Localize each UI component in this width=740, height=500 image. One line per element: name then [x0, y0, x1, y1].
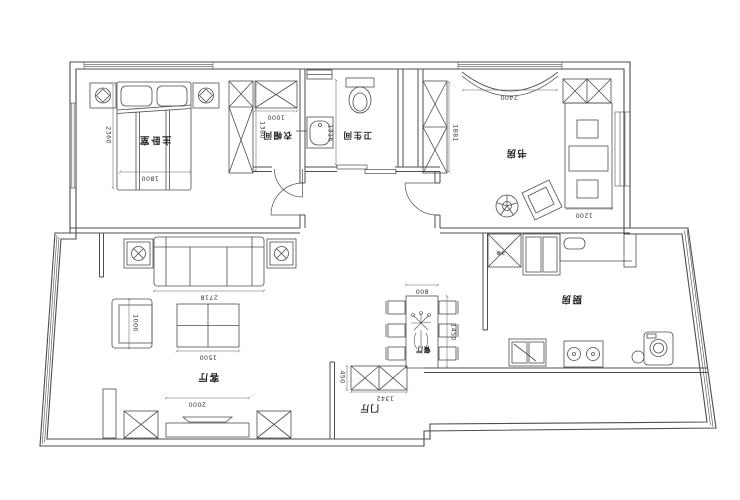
- pillow: [121, 86, 152, 106]
- chair: [439, 301, 456, 314]
- dimension-lines: [113, 80, 612, 398]
- dim-shoe-cabinet: 1342: [376, 395, 394, 402]
- entry-furniture: [351, 366, 407, 390]
- dim-sofa: 2718: [200, 294, 218, 301]
- exterior-walls: [40, 62, 716, 446]
- pillow: [157, 86, 187, 106]
- room-label-bathroom: 卫生间: [342, 130, 372, 139]
- dim-bed-width: 1800: [141, 175, 159, 182]
- dim-cloak-depth: 1380: [259, 121, 266, 139]
- doors: [271, 165, 437, 215]
- tv-cabinet: [166, 423, 249, 437]
- room-label-living-room: 客厅: [197, 371, 219, 381]
- bedroom-door: [271, 183, 303, 215]
- desk: [565, 103, 612, 208]
- cabinet: [523, 234, 560, 275]
- washing-machine: [644, 332, 673, 365]
- dim-cloak-wardrobe: 1000: [267, 114, 285, 121]
- dim-study-window: 2400: [500, 94, 518, 101]
- dining-table: [406, 296, 438, 368]
- flue: [624, 234, 636, 267]
- room-label-cloakroom: 衣帽间: [262, 130, 292, 139]
- room-label-kitchen: 厨房: [560, 293, 582, 303]
- dim-coffee-table: 1500: [199, 354, 217, 361]
- toilet: [346, 78, 374, 87]
- stove: [564, 341, 603, 367]
- nightstand: [193, 83, 219, 108]
- nightstand: [90, 83, 116, 108]
- sofa: [154, 237, 264, 286]
- plant-centerpiece: [411, 312, 431, 350]
- tv: [183, 417, 232, 422]
- chair: [439, 347, 456, 360]
- room-label-dining-room: 餐厅: [416, 346, 431, 353]
- dim-desk: 1200: [575, 212, 593, 219]
- dim-bed-length: 2360: [105, 126, 112, 144]
- monitor: [569, 146, 608, 171]
- wardrobe: [229, 81, 253, 173]
- study-door: [405, 183, 437, 215]
- floorplan-drawing: [0, 0, 740, 500]
- floor-plan: 主卧室 衣帽间 卫生间 书房 客厅 餐厅 门厅 厨房 冰箱 2360 1800 …: [0, 0, 740, 500]
- chair: [388, 324, 405, 337]
- dim-tv-wall: 2000: [188, 401, 206, 408]
- bathroom-sliding-door: [337, 165, 367, 169]
- room-label-entry: 门厅: [359, 403, 379, 412]
- dim-dining-length: 1450: [450, 323, 457, 341]
- chair: [388, 347, 405, 360]
- dim-armchair: 1000: [132, 314, 139, 332]
- dim-bathroom-width: 1316: [327, 124, 334, 142]
- lamp-icon: [96, 88, 111, 103]
- sink: [509, 339, 546, 366]
- room-label-study: 书房: [505, 147, 527, 157]
- chair: [388, 301, 405, 314]
- dim-shoe-depth: 450: [339, 370, 346, 383]
- dim-study-cabinet: 1881: [452, 124, 459, 142]
- floor-drain: [632, 351, 644, 363]
- armchair: [522, 180, 562, 220]
- room-label-master-bedroom: 主卧室: [138, 134, 171, 144]
- lamp-icon: [199, 88, 214, 103]
- label-fridge: 冰箱: [497, 249, 506, 254]
- column: [103, 389, 116, 438]
- dim-dining-width: 800: [415, 288, 428, 295]
